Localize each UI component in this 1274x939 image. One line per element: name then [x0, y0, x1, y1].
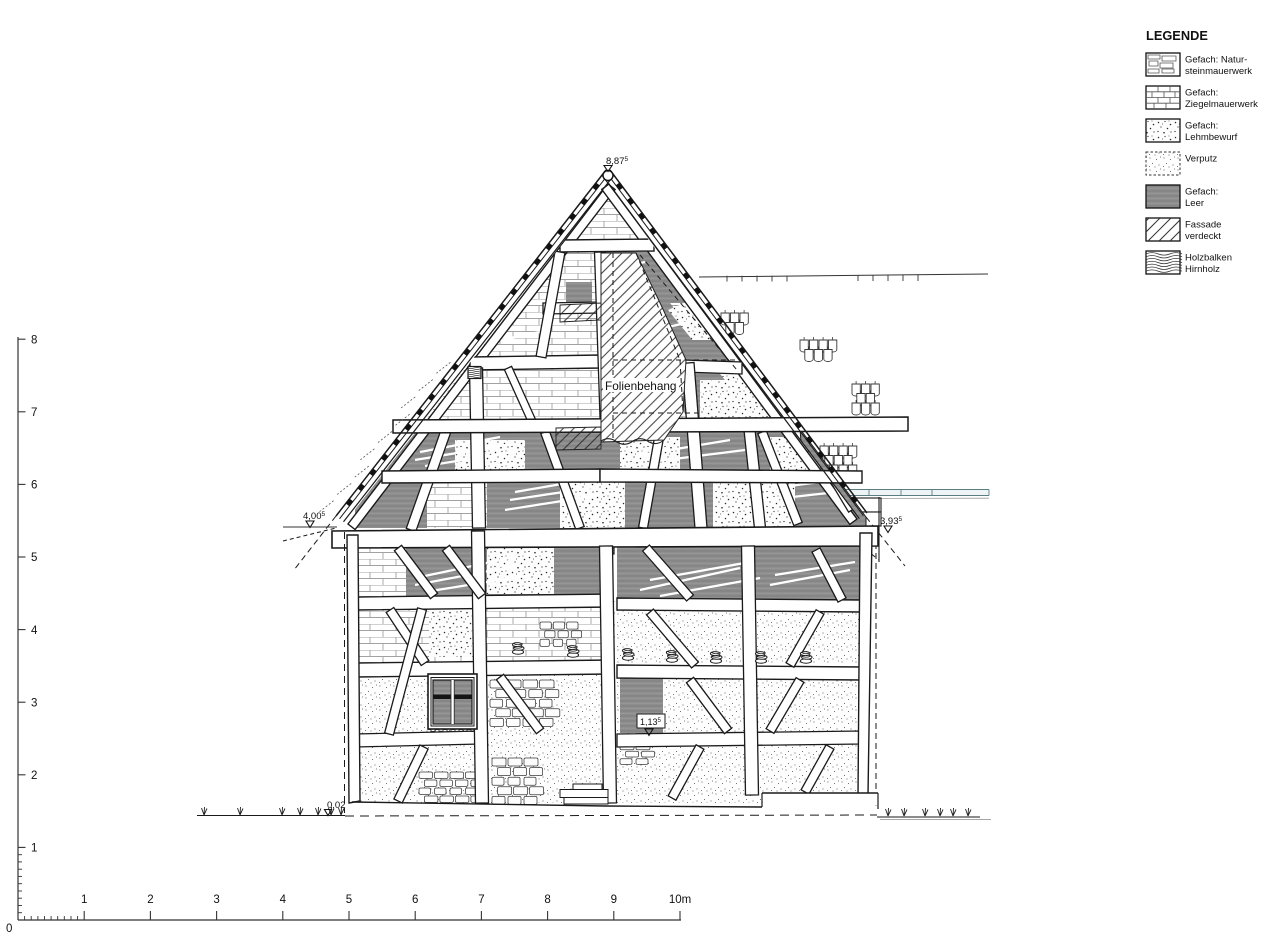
svg-text:Fassade: Fassade — [1185, 220, 1221, 231]
svg-text:6: 6 — [31, 480, 37, 492]
svg-text:4: 4 — [280, 894, 287, 906]
svg-text:Leer: Leer — [1185, 198, 1204, 209]
svg-text:9: 9 — [611, 894, 617, 906]
svg-text:8: 8 — [31, 334, 37, 346]
svg-text:LEGENDE: LEGENDE — [1146, 28, 1208, 43]
svg-text:8: 8 — [544, 894, 550, 906]
svg-text:Verputz: Verputz — [1185, 154, 1217, 165]
svg-text:3: 3 — [31, 697, 37, 709]
svg-text:Gefach:: Gefach: — [1185, 121, 1218, 132]
svg-text:10m: 10m — [669, 894, 691, 906]
svg-text:5: 5 — [346, 894, 352, 906]
svg-text:Holzbalken: Holzbalken — [1185, 253, 1232, 264]
svg-text:4: 4 — [31, 625, 38, 637]
svg-text:Gefach: Natur-: Gefach: Natur- — [1185, 55, 1247, 66]
svg-text:Gefach:: Gefach: — [1185, 187, 1218, 198]
svg-text:2: 2 — [31, 770, 37, 782]
svg-text:verdeckt: verdeckt — [1185, 231, 1221, 242]
svg-text:Hirnholz: Hirnholz — [1185, 264, 1220, 275]
svg-text:1: 1 — [81, 894, 87, 906]
svg-text:0: 0 — [6, 923, 12, 935]
svg-text:Ziegelmauerwerk: Ziegelmauerwerk — [1185, 99, 1258, 110]
svg-text:Lehmbewurf: Lehmbewurf — [1185, 132, 1238, 143]
svg-text:steinmauerwerk: steinmauerwerk — [1185, 66, 1252, 77]
svg-text:5: 5 — [31, 552, 37, 564]
svg-text:2: 2 — [147, 894, 153, 906]
svg-text:1: 1 — [31, 843, 37, 855]
svg-text:Folienbehang: Folienbehang — [605, 379, 677, 393]
svg-text:3: 3 — [213, 894, 219, 906]
svg-text:Gefach:: Gefach: — [1185, 88, 1218, 99]
svg-text:6: 6 — [412, 894, 418, 906]
svg-text:7: 7 — [478, 894, 484, 906]
svg-text:7: 7 — [31, 407, 37, 419]
